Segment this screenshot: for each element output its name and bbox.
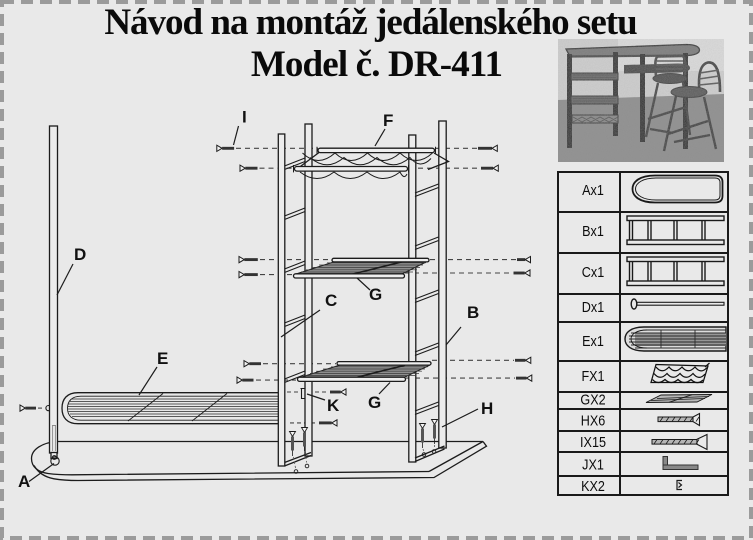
svg-text:FX1: FX1 [581,367,604,384]
svg-text:C: C [325,291,337,310]
svg-text:Ex1: Ex1 [582,332,604,349]
svg-text:GX2: GX2 [580,390,605,407]
svg-text:G: G [369,285,382,304]
svg-text:D: D [74,245,86,264]
svg-text:E: E [157,349,168,368]
svg-text:F: F [383,111,393,130]
svg-text:G: G [368,393,381,412]
svg-text:B: B [467,303,479,322]
svg-text:IX15: IX15 [580,433,606,450]
svg-text:K: K [327,396,340,415]
svg-text:H: H [481,399,493,418]
svg-text:Bx1: Bx1 [582,222,604,239]
svg-text:A: A [18,472,30,491]
svg-text:Dx1: Dx1 [582,298,605,315]
svg-text:HX6: HX6 [581,411,606,428]
svg-text:KX2: KX2 [581,477,605,494]
svg-text:Ax1: Ax1 [582,181,604,198]
svg-text:Cx1: Cx1 [582,263,605,280]
svg-text:I: I [242,108,247,127]
svg-text:JX1: JX1 [582,455,604,472]
